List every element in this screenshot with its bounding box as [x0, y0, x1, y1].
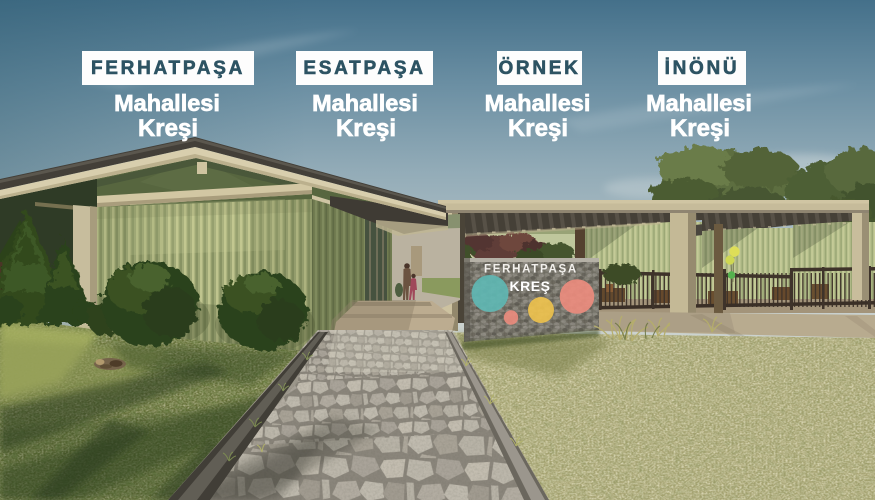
- svg-text:KREŞ: KREŞ: [510, 278, 551, 294]
- svg-text:Mahallesi: Mahallesi: [485, 90, 591, 116]
- svg-text:Mahallesi: Mahallesi: [114, 90, 220, 116]
- svg-text:İNÖNÜ: İNÖNÜ: [665, 58, 740, 79]
- svg-text:FERHATPAŞA: FERHATPAŞA: [91, 58, 245, 79]
- svg-text:Mahallesi: Mahallesi: [312, 90, 418, 116]
- svg-text:Kreşi: Kreşi: [670, 115, 730, 142]
- svg-text:Mahallesi: Mahallesi: [646, 90, 752, 116]
- svg-text:Kreşi: Kreşi: [508, 115, 568, 142]
- svg-text:ESATPAŞA: ESATPAŞA: [303, 58, 425, 79]
- svg-text:FERHATPAŞA: FERHATPAŞA: [484, 264, 578, 276]
- svg-text:ÖRNEK: ÖRNEK: [498, 58, 580, 79]
- svg-text:Kreşi: Kreşi: [336, 115, 396, 142]
- svg-text:Kreşi: Kreşi: [138, 115, 198, 142]
